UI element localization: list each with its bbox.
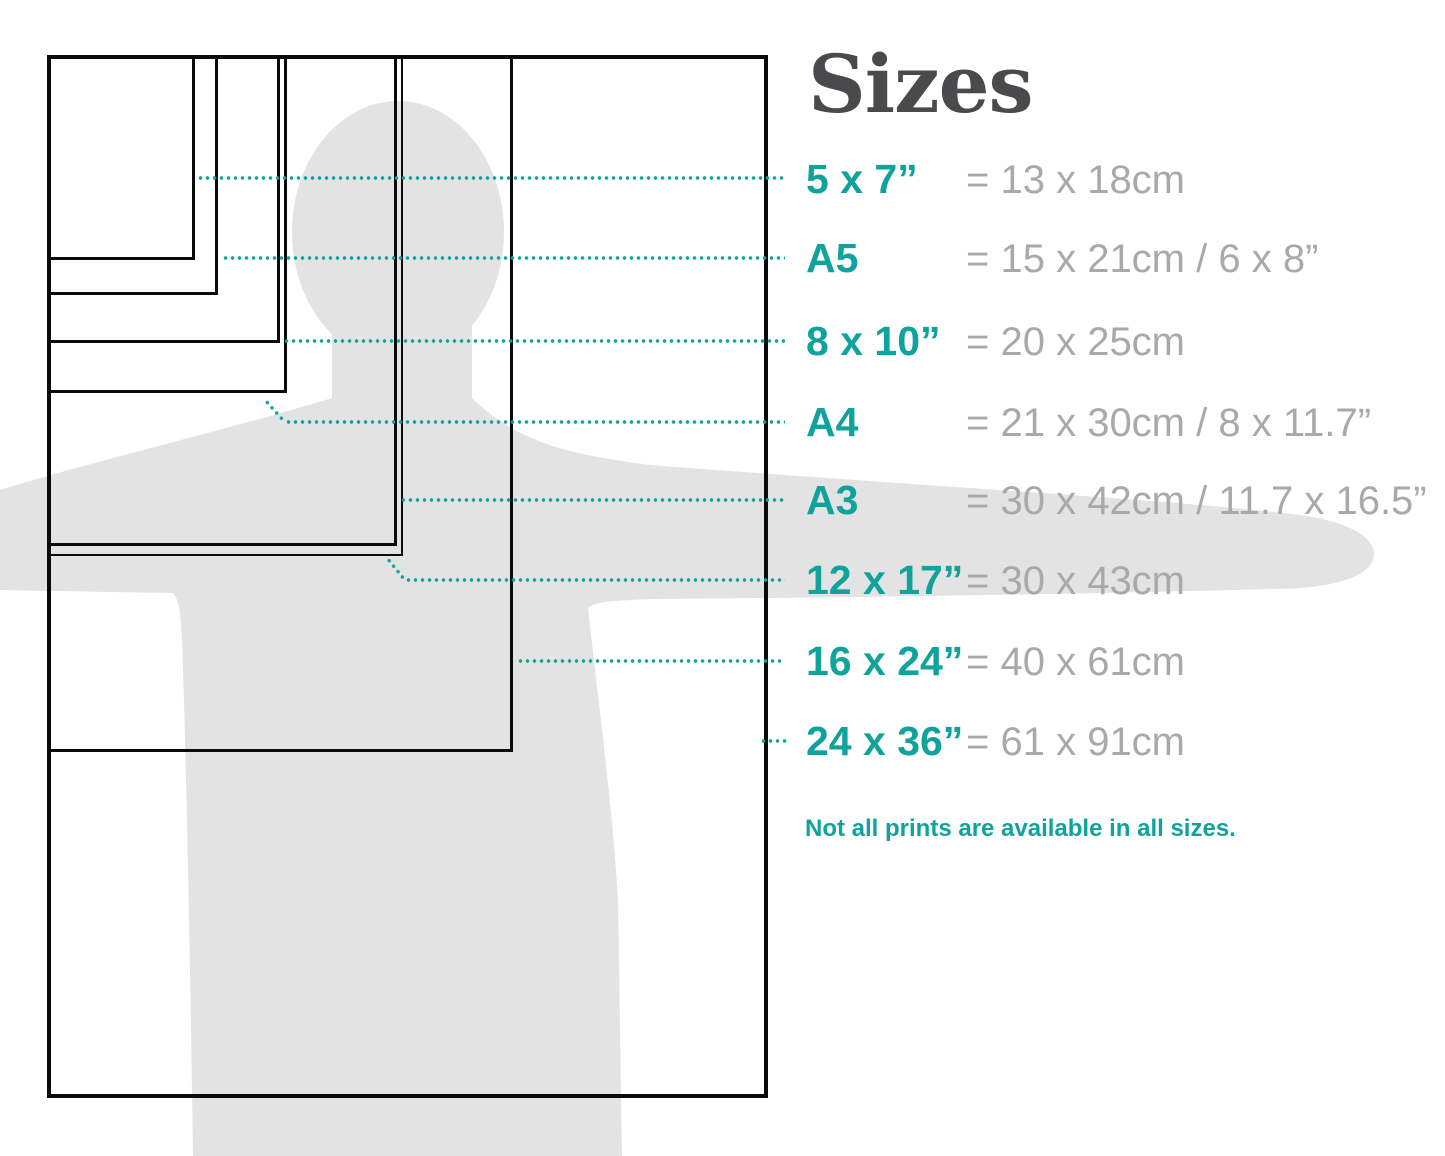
size-label-a5: A5 xyxy=(806,234,858,282)
size-row-a4: A4 = 21 x 30cm / 8 x 11.7” xyxy=(806,398,1442,446)
leader-8x10 xyxy=(283,339,785,343)
size-metric-24x36: = 61 x 91cm xyxy=(966,718,1185,766)
size-label-24x36: 24 x 36” xyxy=(806,717,963,765)
size-row-a5: A5 = 15 x 21cm / 6 x 8” xyxy=(806,234,1442,282)
size-label-12x17: 12 x 17” xyxy=(806,556,963,604)
size-metric-a5: = 15 x 21cm / 6 x 8” xyxy=(966,235,1318,283)
size-row-8x10: 8 x 10” = 20 x 25cm xyxy=(806,317,1442,365)
size-row-16x24: 16 x 24” = 40 x 61cm xyxy=(806,637,1442,685)
size-metric-16x24: = 40 x 61cm xyxy=(966,638,1185,686)
size-label-a3: A3 xyxy=(806,476,858,524)
leader-12x17 xyxy=(405,578,785,582)
leader-16x24 xyxy=(517,659,781,663)
print-size-guide: Sizes 5 x 7” = 13 x 18cm A5 = 15 x 21cm … xyxy=(0,0,1445,1156)
leader-5x7 xyxy=(197,176,785,180)
size-label-5x7: 5 x 7” xyxy=(806,155,918,203)
leader-a4 xyxy=(285,420,785,424)
availability-note: Not all prints are available in all size… xyxy=(805,813,1236,845)
size-label-16x24: 16 x 24” xyxy=(806,637,963,685)
size-label-a4: A4 xyxy=(806,398,858,446)
size-label-8x10: 8 x 10” xyxy=(806,317,941,365)
size-metric-8x10: = 20 x 25cm xyxy=(966,318,1185,366)
size-metric-5x7: = 13 x 18cm xyxy=(966,156,1185,204)
page-title: Sizes xyxy=(808,44,1033,124)
leader-24x36 xyxy=(760,739,787,743)
leader-a5 xyxy=(222,256,785,260)
size-row-5x7: 5 x 7” = 13 x 18cm xyxy=(806,155,1442,203)
size-metric-12x17: = 30 x 43cm xyxy=(966,557,1185,605)
rect-5x7 xyxy=(47,55,195,260)
size-metric-a4: = 21 x 30cm / 8 x 11.7” xyxy=(966,399,1371,447)
size-metric-a3: = 30 x 42cm / 11.7 x 16.5” xyxy=(966,477,1427,525)
size-row-24x36: 24 x 36” = 61 x 91cm xyxy=(806,717,1442,765)
leader-a3 xyxy=(400,498,785,502)
size-row-a3: A3 = 30 x 42cm / 11.7 x 16.5” xyxy=(806,476,1442,524)
size-row-12x17: 12 x 17” = 30 x 43cm xyxy=(806,556,1442,604)
